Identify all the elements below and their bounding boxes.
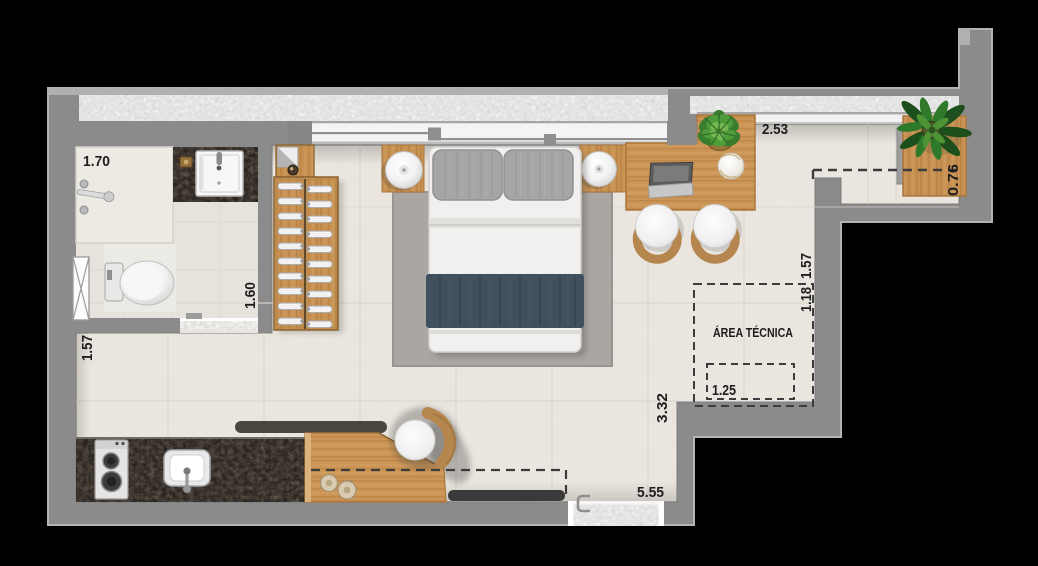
- svg-text:1.18: 1.18: [798, 287, 815, 312]
- svg-text:1.57: 1.57: [798, 253, 815, 279]
- svg-text:0.76: 0.76: [945, 164, 962, 196]
- svg-text:3.32: 3.32: [654, 393, 671, 423]
- svg-text:2.53: 2.53: [762, 121, 788, 138]
- svg-text:1.60: 1.60: [242, 282, 259, 309]
- svg-text:5.55: 5.55: [637, 484, 664, 501]
- svg-text:ÁREA TÉCNICA: ÁREA TÉCNICA: [713, 325, 793, 340]
- svg-text:1.57: 1.57: [79, 335, 96, 361]
- svg-text:1.70: 1.70: [83, 153, 110, 170]
- svg-text:1.25: 1.25: [712, 382, 736, 399]
